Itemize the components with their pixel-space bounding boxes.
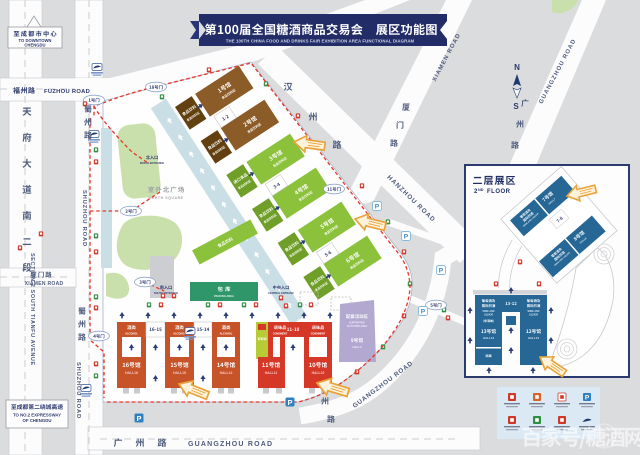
- svg-text:FLOOR: FLOOR: [487, 189, 511, 195]
- svg-text:CONDIMENT: CONDIMENT: [311, 333, 326, 336]
- svg-text:OF CHENGDU: OF CHENGDU: [23, 418, 52, 423]
- svg-text:ALCOHOL: ALCOHOL: [173, 332, 186, 336]
- svg-text:ACTIVITIES AREA: ACTIVITIES AREA: [347, 325, 368, 328]
- svg-text:HALL16: HALL16: [125, 371, 138, 375]
- svg-text:P: P: [439, 267, 444, 274]
- svg-text:P: P: [421, 308, 426, 315]
- svg-text:CONDIMENT: CONDIMENT: [273, 333, 288, 336]
- svg-text:HALL13: HALL13: [483, 336, 495, 340]
- svg-text:SHUZHOU ROAD: SHUZHOU ROAD: [75, 362, 81, 419]
- svg-text:HALL15: HALL15: [173, 371, 186, 375]
- svg-text:LIQUOR: LIQUOR: [529, 314, 539, 317]
- svg-text:P: P: [287, 398, 292, 407]
- svg-text:ALCOHOL: ALCOHOL: [220, 332, 233, 336]
- svg-text:PACKING AREA: PACKING AREA: [214, 294, 234, 298]
- svg-text:ALCOHOL: ALCOHOL: [125, 332, 138, 336]
- svg-text:SHUZHOU ROAD: SHUZHOU ROAD: [81, 190, 87, 247]
- svg-text:CENTRAL ENTRANC: CENTRAL ENTRANC: [268, 291, 294, 295]
- svg-text:THE 100TH CHINA FOOD AND DRINK: THE 100TH CHINA FOOD AND DRINKS FAIR EXH…: [226, 39, 415, 44]
- svg-text:P: P: [136, 414, 141, 423]
- svg-text:CHENGDU: CHENGDU: [24, 43, 45, 48]
- svg-text:HALL11: HALL11: [265, 371, 278, 375]
- svg-text:P: P: [404, 233, 409, 240]
- svg-text:ND: ND: [478, 188, 484, 192]
- svg-text:GUANGZHOU ROAD: GUANGZHOU ROAD: [188, 441, 273, 448]
- svg-text:P: P: [375, 203, 380, 210]
- svg-text:N: N: [514, 63, 520, 72]
- svg-text:LIQUOR: LIQUOR: [484, 314, 494, 317]
- svg-text:HALL9: HALL9: [352, 345, 361, 349]
- svg-text:P: P: [585, 395, 590, 402]
- svg-text:SECTION 2 SOUTH TIANFU AVENUE: SECTION 2 SOUTH TIANFU AVENUE: [29, 253, 35, 366]
- svg-text:HALL10: HALL10: [312, 371, 325, 375]
- svg-text:S: S: [513, 102, 519, 111]
- svg-text:HALL12: HALL12: [528, 336, 540, 340]
- svg-text:FUZHOU ROAD: FUZHOU ROAD: [44, 89, 90, 95]
- svg-text:TO NO.2 EXPRESSWAY: TO NO.2 EXPRESSWAY: [13, 413, 61, 418]
- svg-text:NORTH ENTRANCE: NORTH ENTRANCE: [140, 161, 165, 165]
- svg-text:HALL14: HALL14: [220, 371, 233, 375]
- svg-text:XIAMEN ROAD: XIAMEN ROAD: [25, 281, 64, 287]
